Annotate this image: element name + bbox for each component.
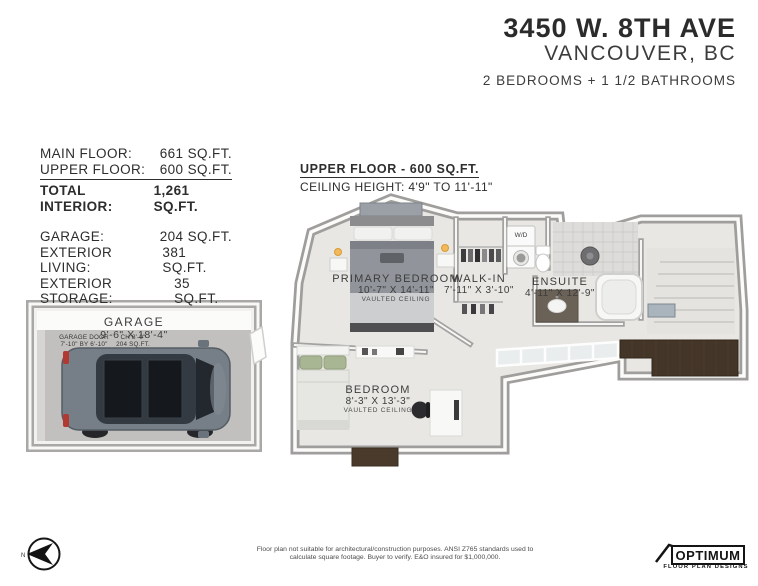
- stat-exterior-storage: EXTERIOR STORAGE:35 SQ.FT.: [40, 276, 232, 307]
- upper-floor-heading: UPPER FLOOR - 600 SQ.FT. CEILING HEIGHT:…: [300, 160, 493, 194]
- car-mirror: [198, 340, 209, 347]
- ceiling-height-note: CEILING HEIGHT: 4'9" TO 11'-11": [300, 180, 493, 194]
- bathtub: [596, 274, 642, 320]
- logo-name: OPTIMUM: [676, 548, 741, 563]
- primary-bed: [350, 203, 434, 332]
- stat-exterior-living: EXTERIOR LIVING:381 SQ.FT.: [40, 245, 232, 276]
- label-bedroom: BEDROOM 8'-3" X 13'-3" VAULTED CEILING: [344, 384, 413, 414]
- lamp-icon: [335, 249, 342, 256]
- label-ensuite: ENSUITE 4'-11" X 12'-9": [525, 276, 595, 299]
- listing-header: 3450 W. 8TH AVE VANCOUVER, BC 2 BEDROOMS…: [483, 14, 736, 88]
- lamp-icon: [442, 245, 449, 252]
- north-compass: N: [21, 539, 60, 570]
- area-summary: MAIN FLOOR:661 SQ.FT. UPPER FLOOR:600 SQ…: [40, 146, 232, 307]
- toilet: [536, 246, 550, 272]
- stat-garage: GARAGE:204 SQ.FT.: [40, 229, 232, 245]
- address-title: 3450 W. 8TH AVE: [483, 14, 736, 42]
- office-chair: [412, 402, 429, 419]
- car-taillight: [63, 414, 69, 427]
- stat-upper-floor: UPPER FLOOR:600 SQ.FT.: [40, 162, 232, 181]
- disclaimer: Floor plan not suitable for architectura…: [257, 546, 534, 562]
- label-primary-bedroom: PRIMARY BEDROOM 10'-7" X 14'-11" VAULTED…: [332, 273, 460, 303]
- city-subtitle: VANCOUVER, BC: [483, 42, 736, 66]
- compass-n-label: N: [21, 553, 25, 559]
- stat-total-interior: TOTAL INTERIOR:1,261 SQ.FT.: [40, 180, 232, 214]
- hamper-lid: [587, 253, 594, 260]
- optimum-logo: OPTIMUM: [671, 545, 745, 565]
- bedroom-stoop-wood: [352, 448, 398, 466]
- stat-main-floor: MAIN FLOOR:661 SQ.FT.: [40, 146, 232, 162]
- upper-floor-title: UPPER FLOOR - 600 SQ.FT.: [300, 162, 479, 178]
- label-walkin: WALK-IN 7'-11" X 3'-10": [444, 273, 514, 296]
- label-washer-dryer: W/D: [515, 232, 528, 239]
- staircase: [647, 248, 735, 334]
- label-garage-door: GARAGE DOOR 7'-10" BY 6'-10": [59, 334, 109, 348]
- logo-tagline: FLOOR PLAN DESIGNS: [663, 564, 748, 570]
- floorplan-page: N 3450 W. 8TH AVE VANCOUVER, BC 2 BEDROO…: [0, 0, 758, 586]
- beds-baths-line: 2 BEDROOMS + 1 1/2 BATHROOMS: [483, 73, 736, 88]
- label-garage-ch: CH 8'-0" 204 SQ.FT.: [116, 334, 150, 348]
- bedroom-shelf: [356, 346, 414, 358]
- car-mirror: [198, 431, 209, 438]
- car: [62, 340, 230, 438]
- car-taillight: [63, 351, 69, 364]
